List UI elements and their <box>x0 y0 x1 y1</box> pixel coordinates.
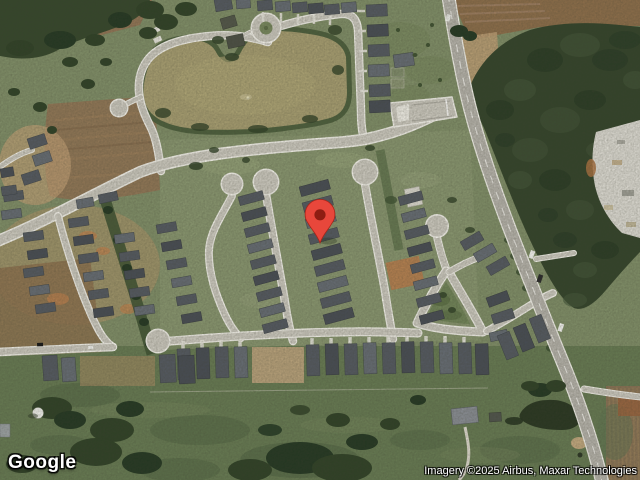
map-canvas <box>0 0 640 480</box>
google-logo[interactable]: Google <box>8 452 76 474</box>
satellite-map[interactable]: Google Imagery ©2025 Airbus, Maxar Techn… <box>0 0 640 480</box>
map-attribution: Imagery ©2025 Airbus, Maxar Technologies <box>424 465 637 477</box>
